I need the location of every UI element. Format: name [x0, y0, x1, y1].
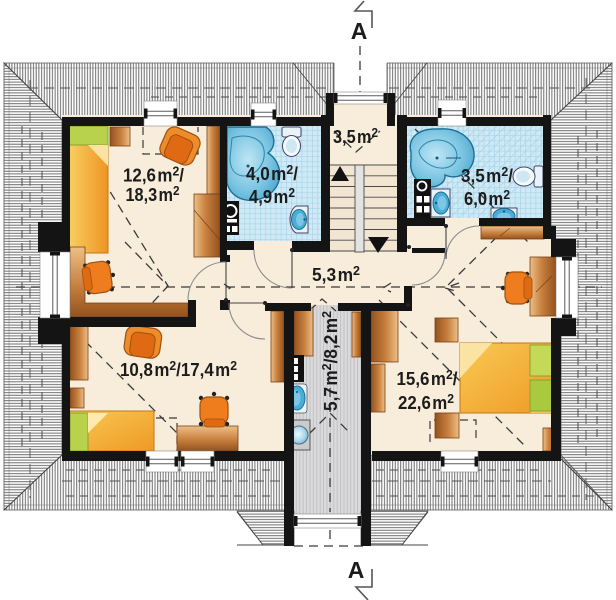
svg-text:10,8 m2/17,4 m2: 10,8 m2/17,4 m2: [120, 358, 237, 380]
svg-text:22,6 m2: 22,6 m2: [398, 391, 454, 413]
svg-text:5,3 m2: 5,3 m2: [312, 263, 360, 285]
svg-text:6,0 m2: 6,0 m2: [464, 187, 510, 209]
svg-text:18,3 m2: 18,3 m2: [126, 183, 180, 205]
svg-text:5,7 m2/8,2 m2: 5,7 m2/8,2 m2: [319, 311, 341, 411]
svg-text:3,5 m2: 3,5 m2: [333, 125, 378, 147]
svg-text:A: A: [351, 18, 368, 44]
svg-text:4,9 m2: 4,9 m2: [249, 185, 295, 207]
svg-text:A: A: [348, 557, 365, 583]
